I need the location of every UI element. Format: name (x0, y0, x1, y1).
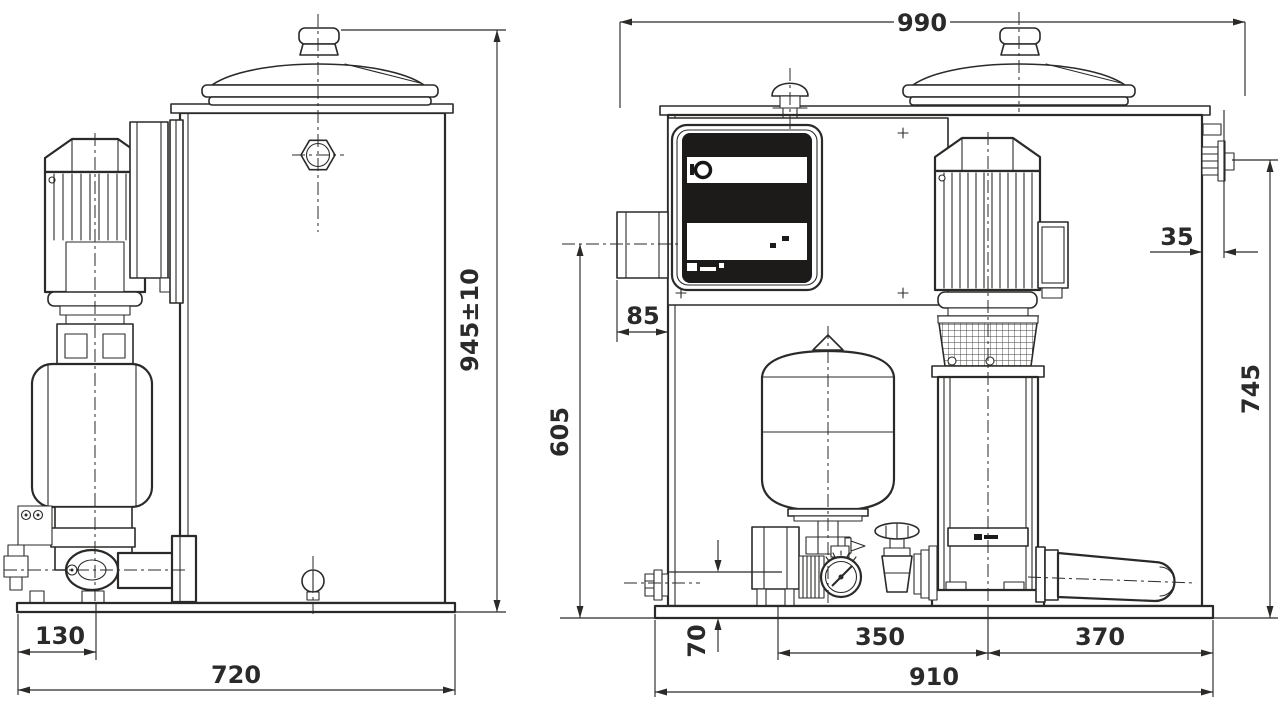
dim-label-745: 745 (1237, 364, 1265, 414)
dim-front-connection-height: 745 (1213, 160, 1278, 618)
dim-label-910: 910 (909, 663, 959, 691)
dim-label-70: 70 (683, 624, 711, 657)
tank-drain-fitting (645, 570, 668, 600)
panel-front (682, 133, 812, 283)
guard-bolt-icon (986, 357, 994, 365)
brand-logo-icon (696, 163, 711, 178)
vessel-bracket (752, 527, 799, 589)
dim-front-right-span: 370 (988, 620, 1213, 660)
dim-label-370: 370 (1075, 623, 1125, 651)
dim-label-350: 350 (855, 623, 905, 651)
dimensional-drawing: 990 945±10 130 720 605 (0, 0, 1280, 701)
front-view (562, 12, 1234, 622)
dim-label-605: 605 (546, 407, 574, 457)
side-tank-lid (202, 28, 438, 105)
side-tank (171, 104, 453, 603)
dim-front-conduit-height: 605 (546, 244, 655, 618)
side-base-plate (17, 603, 455, 612)
panel-button (687, 263, 697, 271)
panel-button (700, 267, 716, 271)
panel-indicator (719, 263, 724, 268)
front-base-plate (655, 606, 1213, 618)
side-junction-box (130, 120, 183, 303)
dim-front-conduit-depth: 85 (617, 280, 668, 342)
dim-label-35: 35 (1160, 223, 1193, 251)
dim-label-720: 720 (211, 661, 261, 689)
lid-knob (299, 28, 339, 44)
conduit-box (617, 212, 668, 278)
dim-front-base-width: 910 (655, 620, 1213, 697)
drawing-canvas: 990 945±10 130 720 605 (0, 0, 1280, 701)
control-panel (668, 118, 948, 305)
dim-label-85: 85 (626, 302, 659, 330)
dim-label-990: 990 (897, 9, 947, 37)
side-view (4, 14, 455, 614)
dim-label-945: 945±10 (456, 268, 484, 372)
dim-label-130: 130 (35, 622, 85, 650)
guard-bolt-icon (948, 357, 956, 365)
motor-bolt-icon (939, 175, 945, 181)
tank-side-connection (1202, 124, 1234, 181)
panel-display-band (687, 223, 807, 260)
lid-knob (1000, 28, 1040, 44)
drain-valve (8, 545, 24, 556)
